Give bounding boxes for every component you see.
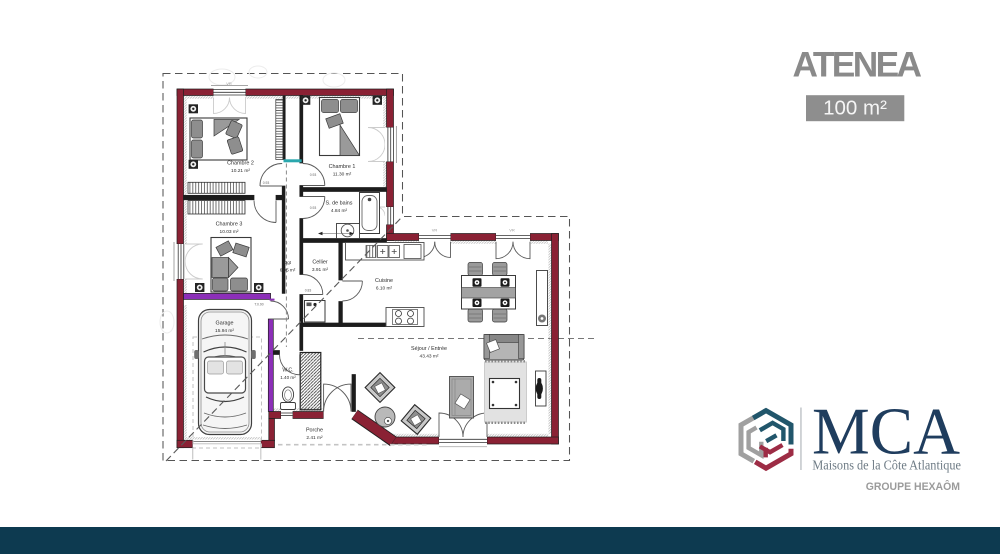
svg-text:3.91 m²: 3.91 m² — [312, 267, 329, 273]
svg-text:T.0.90: T.0.90 — [254, 303, 263, 307]
svg-text:0.93: 0.93 — [263, 181, 270, 185]
svg-text:10.03 m²: 10.03 m² — [220, 229, 239, 235]
svg-text:Dgt: Dgt — [284, 260, 292, 265]
svg-text:4.84 m²: 4.84 m² — [331, 208, 348, 214]
svg-text:Chambre 1: Chambre 1 — [329, 164, 356, 170]
svg-text:6.05 m²: 6.05 m² — [280, 268, 296, 273]
svg-text:Cuisine: Cuisine — [375, 278, 393, 284]
svg-text:0.93: 0.93 — [310, 173, 317, 177]
svg-text:Garage: Garage — [216, 321, 234, 327]
svg-text:10.21 m²: 10.21 m² — [231, 168, 250, 174]
svg-text:100 m²: 100 m² — [823, 97, 887, 120]
svg-text:Porche: Porche — [306, 428, 323, 434]
svg-text:11.30 m²: 11.30 m² — [333, 172, 352, 178]
svg-text:Chambre 2: Chambre 2 — [227, 161, 254, 167]
svg-text:Cellier: Cellier — [312, 260, 327, 266]
svg-text:6.10 m²: 6.10 m² — [376, 286, 393, 292]
svg-text:0.93: 0.93 — [310, 206, 317, 210]
svg-text:GROUPE HEXAÔM: GROUPE HEXAÔM — [866, 480, 960, 493]
svg-text:VR: VR — [226, 81, 232, 86]
svg-text:43.43 m²: 43.43 m² — [420, 354, 439, 360]
svg-text:1.40 m²: 1.40 m² — [280, 375, 296, 380]
svg-text:Maisons de la Côte Atlantique: Maisons de la Côte Atlantique — [812, 458, 961, 473]
svg-text:0.83: 0.83 — [305, 289, 312, 293]
svg-text:W.C.: W.C. — [282, 368, 293, 374]
svg-text:VR: VR — [509, 228, 515, 233]
svg-text:VR: VR — [432, 228, 438, 233]
svg-text:Chambre 3: Chambre 3 — [216, 222, 243, 228]
svg-text:S. de bains: S. de bains — [326, 201, 353, 207]
svg-text:15.94 m²: 15.94 m² — [215, 328, 234, 334]
svg-text:2.41 m²: 2.41 m² — [306, 435, 323, 441]
svg-text:ATENEA: ATENEA — [793, 45, 922, 84]
svg-text:Séjour / Entrée: Séjour / Entrée — [411, 346, 447, 352]
